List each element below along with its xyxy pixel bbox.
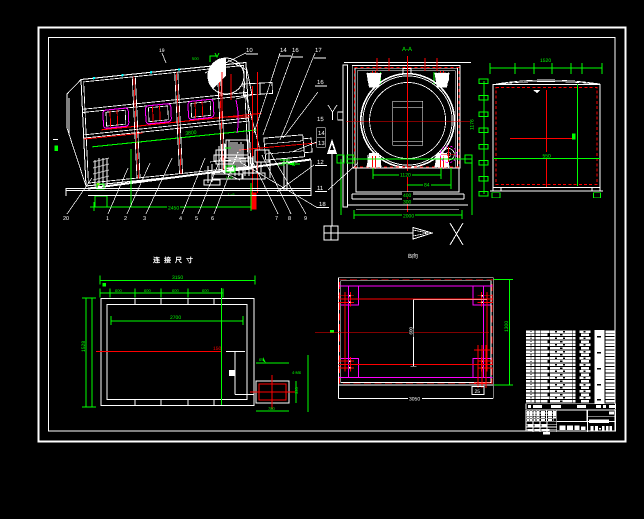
svg-text:150: 150 [213,346,222,352]
svg-text:1528: 1528 [81,341,87,352]
svg-text:3050: 3050 [409,397,420,403]
svg-text:16: 16 [292,47,299,54]
svg-text:3150: 3150 [172,275,183,281]
svg-text:84: 84 [424,183,430,189]
svg-text:18: 18 [319,201,326,208]
svg-text:1520: 1520 [540,58,551,64]
svg-text:600: 600 [409,326,414,334]
svg-text:7: 7 [275,216,278,222]
svg-text:4-M6: 4-M6 [292,370,302,375]
svg-text:4: 4 [179,216,182,222]
svg-text:2450: 2450 [168,206,179,212]
svg-text:600: 600 [115,288,122,293]
svg-text:A-A: A-A [402,46,412,53]
svg-text:14: 14 [318,130,325,137]
svg-text:1176: 1176 [470,119,476,130]
svg-text:L=5: L=5 [278,162,286,167]
svg-text:550: 550 [543,153,552,159]
svg-text:B向: B向 [408,252,418,260]
svg-text:1: 1 [106,216,109,222]
svg-text:11: 11 [317,185,324,192]
svg-text:3: 3 [143,216,146,222]
svg-text:17: 17 [315,47,322,54]
svg-text:1300: 1300 [504,321,510,332]
svg-text:10: 10 [246,47,253,54]
svg-text:14: 14 [280,47,287,54]
svg-text:5: 5 [195,216,198,222]
svg-text:3800: 3800 [185,130,197,138]
svg-text:13: 13 [318,140,325,147]
svg-text:25: 25 [475,389,481,395]
svg-text:600: 600 [202,288,209,293]
svg-text:8: 8 [288,216,291,222]
svg-text:12: 12 [317,159,324,166]
svg-text:1120: 1120 [400,173,411,179]
svg-text:320: 320 [294,387,299,394]
svg-text:9: 9 [304,216,307,222]
svg-text:600: 600 [144,288,151,293]
svg-text:300: 300 [403,200,412,206]
svg-text:2000: 2000 [403,214,414,220]
svg-text:连接尺寸: 连接尺寸 [153,256,197,265]
svg-text:2700: 2700 [170,315,181,321]
svg-text:600: 600 [172,288,179,293]
svg-text:15: 15 [317,116,324,123]
svg-text:20: 20 [63,216,69,222]
svg-text:L=5: L=5 [228,192,236,197]
svg-text:16: 16 [317,79,324,86]
svg-text:780: 780 [268,406,275,411]
svg-text:500: 500 [192,56,199,61]
svg-text:2: 2 [124,216,127,222]
svg-text:6: 6 [211,216,214,222]
svg-text:400: 400 [403,193,412,199]
